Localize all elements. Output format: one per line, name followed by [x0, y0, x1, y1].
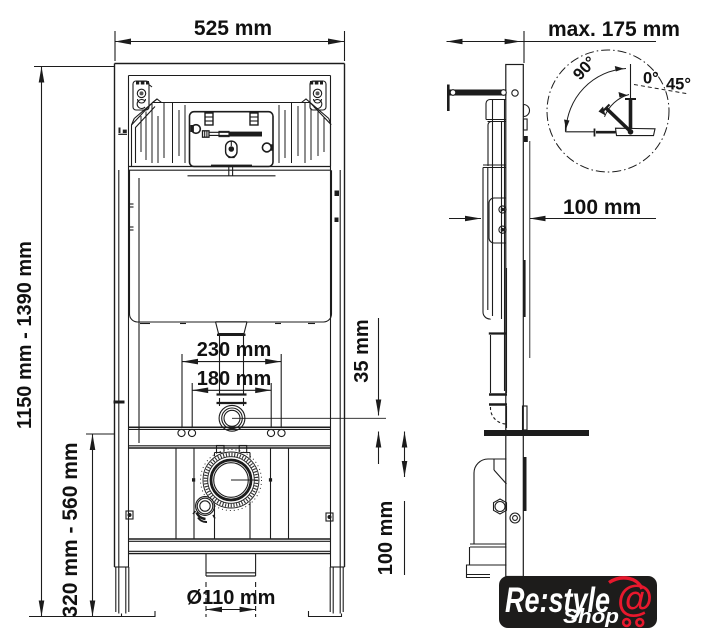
svg-text:0°: 0° — [643, 70, 659, 88]
svg-text:525 mm: 525 mm — [194, 17, 272, 40]
svg-text:90°: 90° — [570, 53, 600, 84]
svg-text:1150 mm - 1390 mm: 1150 mm - 1390 mm — [14, 241, 36, 429]
svg-text:Shop: Shop — [563, 606, 619, 628]
svg-text:100 mm: 100 mm — [375, 501, 397, 576]
svg-text:180 mm: 180 mm — [197, 368, 272, 390]
svg-text:@: @ — [617, 578, 653, 619]
svg-text:35 mm: 35 mm — [351, 319, 373, 382]
svg-text:230 mm: 230 mm — [197, 339, 272, 361]
svg-text:Ø110 mm: Ø110 mm — [187, 587, 276, 609]
svg-text:100 mm: 100 mm — [563, 196, 641, 219]
svg-text:320 mm - 560 mm: 320 mm - 560 mm — [59, 442, 82, 617]
svg-text:max. 175 mm: max. 175 mm — [548, 18, 680, 41]
